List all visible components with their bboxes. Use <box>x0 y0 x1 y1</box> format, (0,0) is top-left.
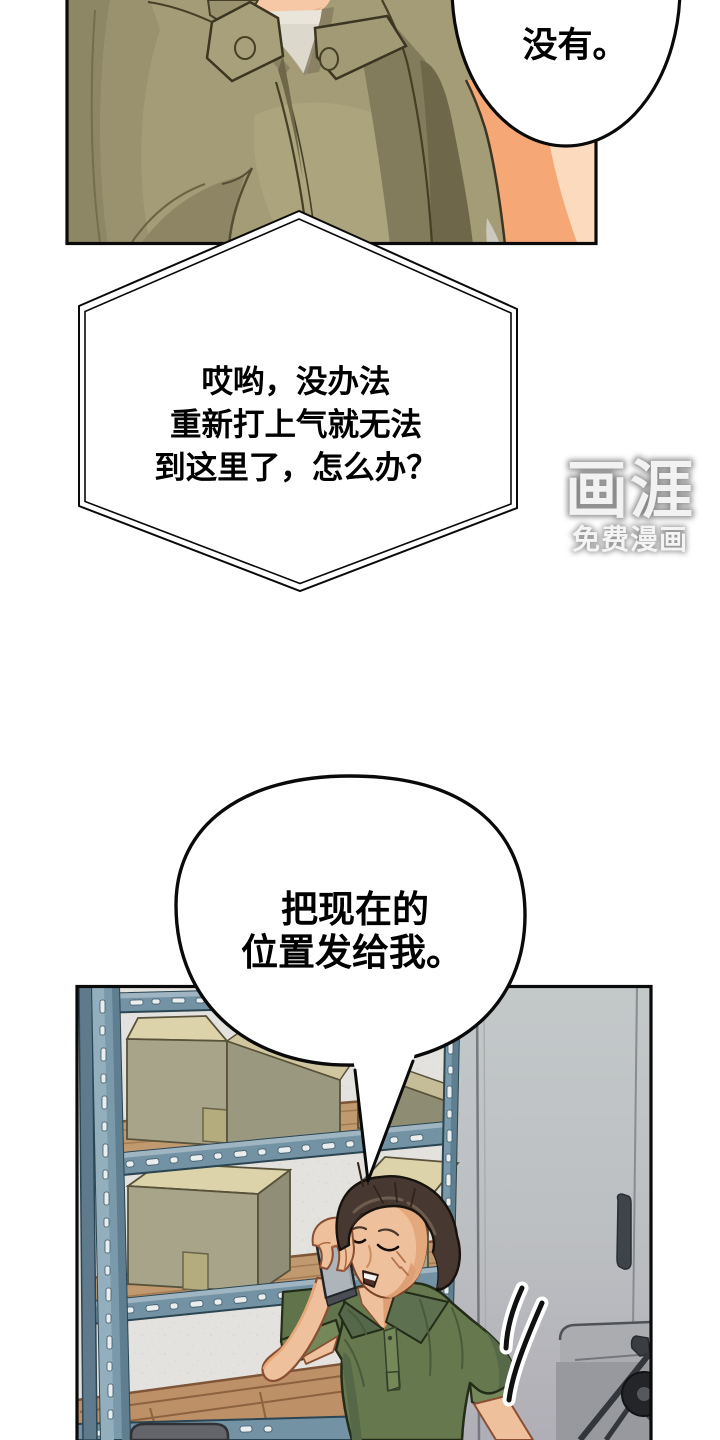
svg-text:没有。: 没有。 <box>522 26 627 65</box>
svg-text:到这里了，怎么办？: 到这里了，怎么办？ <box>154 449 438 485</box>
svg-text:哎哟，没办法: 哎哟，没办法 <box>201 363 390 399</box>
svg-text:画涯: 画涯 <box>565 456 695 526</box>
svg-text:重新打上气就无法: 重新打上气就无法 <box>170 406 422 442</box>
svg-text:免费漫画: 免费漫画 <box>572 524 688 555</box>
svg-text:把现在的: 把现在的 <box>281 889 429 930</box>
svg-text:位置发给我。: 位置发给我。 <box>241 932 463 973</box>
